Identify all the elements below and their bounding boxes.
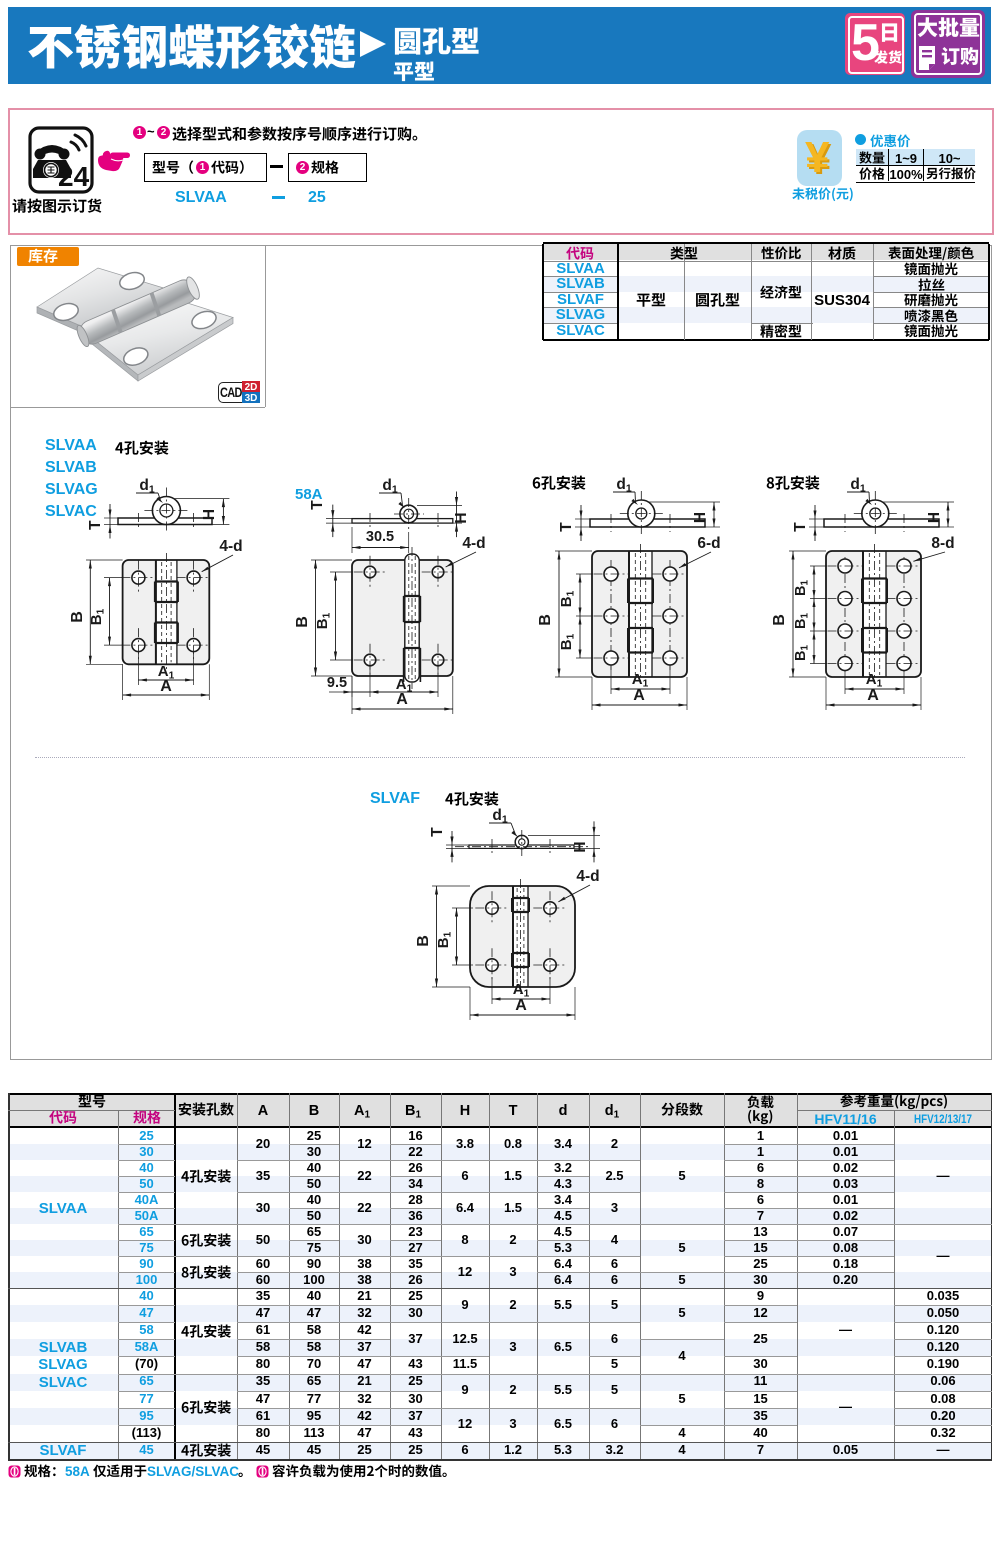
svg-text:9.5: 9.5 [327,675,347,691]
svg-text:B1: B1 [558,633,577,650]
svg-text:B: B [537,614,554,626]
svg-text:A: A [160,678,172,695]
svg-text:B: B [771,614,788,626]
svg-text:T: T [792,522,809,532]
svg-text:T: T [87,520,104,530]
svg-text:B1: B1 [435,931,454,948]
svg-text:B1: B1 [88,608,107,625]
svg-text:B: B [415,935,432,947]
svg-text:B1: B1 [404,1103,420,1120]
svg-text:A: A [867,687,879,704]
svg-text:d1: d1 [604,1103,619,1120]
svg-text:B1: B1 [793,645,811,661]
svg-text:30.5: 30.5 [366,529,394,545]
svg-text:A1: A1 [353,1103,369,1120]
svg-text:H: H [692,512,709,523]
svg-text:B1: B1 [793,580,811,596]
svg-text:T: T [309,500,326,510]
svg-text:T: T [509,1103,518,1119]
svg-text:H: H [453,512,470,523]
svg-text:A: A [633,687,645,704]
svg-text:A: A [515,997,527,1014]
svg-text:4-d: 4-d [462,535,485,552]
svg-text:H: H [460,1103,470,1119]
svg-text:4-d: 4-d [576,868,599,885]
svg-text:d: d [559,1103,568,1119]
svg-text:T: T [429,827,446,837]
svg-text:4-d: 4-d [219,538,242,555]
svg-text:8-d: 8-d [931,535,954,552]
svg-text:B: B [69,611,86,623]
svg-text:H: H [201,509,218,520]
svg-text:T: T [558,522,575,532]
svg-text:6-d: 6-d [697,535,720,552]
svg-text:B1: B1 [314,612,333,629]
svg-text:H: H [926,512,943,523]
svg-text:H: H [572,841,589,852]
svg-text:B: B [309,1103,319,1119]
svg-text:B1: B1 [558,590,577,607]
svg-text:B1: B1 [793,613,811,629]
svg-text:A: A [258,1103,269,1119]
svg-text:B: B [294,616,311,628]
svg-text:A: A [396,691,408,708]
